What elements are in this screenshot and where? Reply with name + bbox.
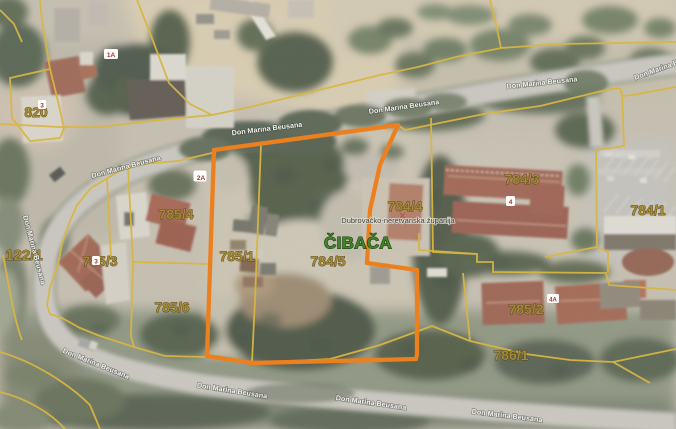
svg-text:786/1: 786/1 bbox=[493, 347, 528, 363]
svg-text:784/1: 784/1 bbox=[630, 202, 665, 218]
svg-text:Dubrovačko-neretvanska županij: Dubrovačko-neretvanska županija bbox=[341, 216, 455, 225]
svg-text:784/4: 784/4 bbox=[387, 198, 422, 214]
svg-text:785/4: 785/4 bbox=[158, 206, 193, 222]
svg-text:785/1: 785/1 bbox=[219, 248, 254, 264]
svg-text:2A: 2A bbox=[197, 175, 206, 182]
svg-text:785/6: 785/6 bbox=[154, 299, 189, 315]
svg-text:3: 3 bbox=[94, 259, 98, 266]
svg-text:ČIBAČA: ČIBAČA bbox=[324, 234, 392, 253]
svg-text:4: 4 bbox=[509, 199, 513, 206]
svg-text:785/3: 785/3 bbox=[82, 253, 117, 269]
svg-text:4A: 4A bbox=[549, 298, 557, 304]
svg-text:784/5: 784/5 bbox=[310, 253, 345, 269]
svg-text:1A: 1A bbox=[107, 52, 116, 59]
svg-text:3: 3 bbox=[40, 103, 44, 110]
svg-text:784/3: 784/3 bbox=[504, 171, 539, 187]
svg-text:785/2: 785/2 bbox=[508, 301, 543, 317]
